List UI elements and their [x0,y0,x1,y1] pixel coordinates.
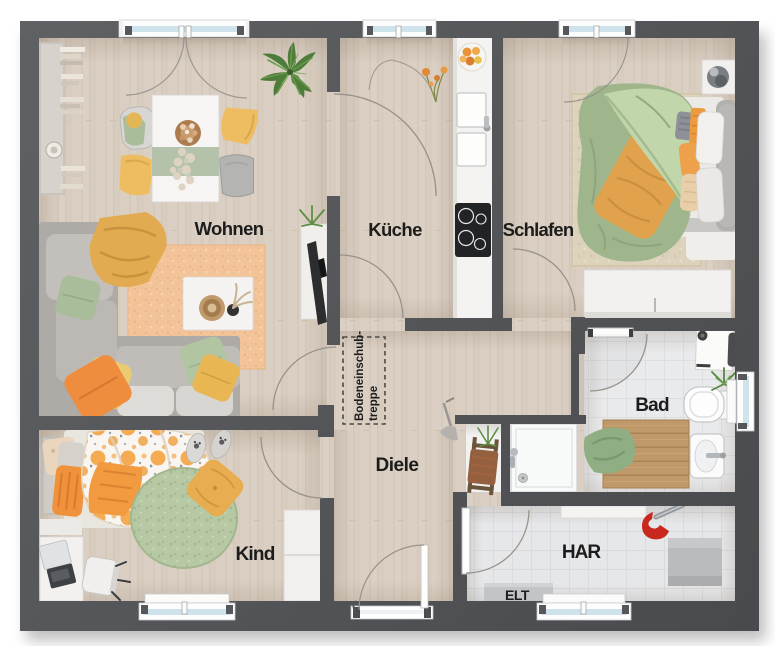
svg-text:Bad: Bad [635,395,669,416]
svg-text:Kind: Kind [235,544,274,565]
svg-text:treppe: treppe [368,386,380,421]
svg-text:ELT: ELT [505,587,530,603]
svg-text:Bodeneinschub-: Bodeneinschub- [354,331,366,421]
svg-text:Schlafen: Schlafen [503,219,574,240]
svg-text:Küche: Küche [368,219,422,240]
svg-text:HAR: HAR [562,542,601,563]
svg-text:Diele: Diele [376,455,419,476]
svg-text:Wohnen: Wohnen [194,218,263,239]
